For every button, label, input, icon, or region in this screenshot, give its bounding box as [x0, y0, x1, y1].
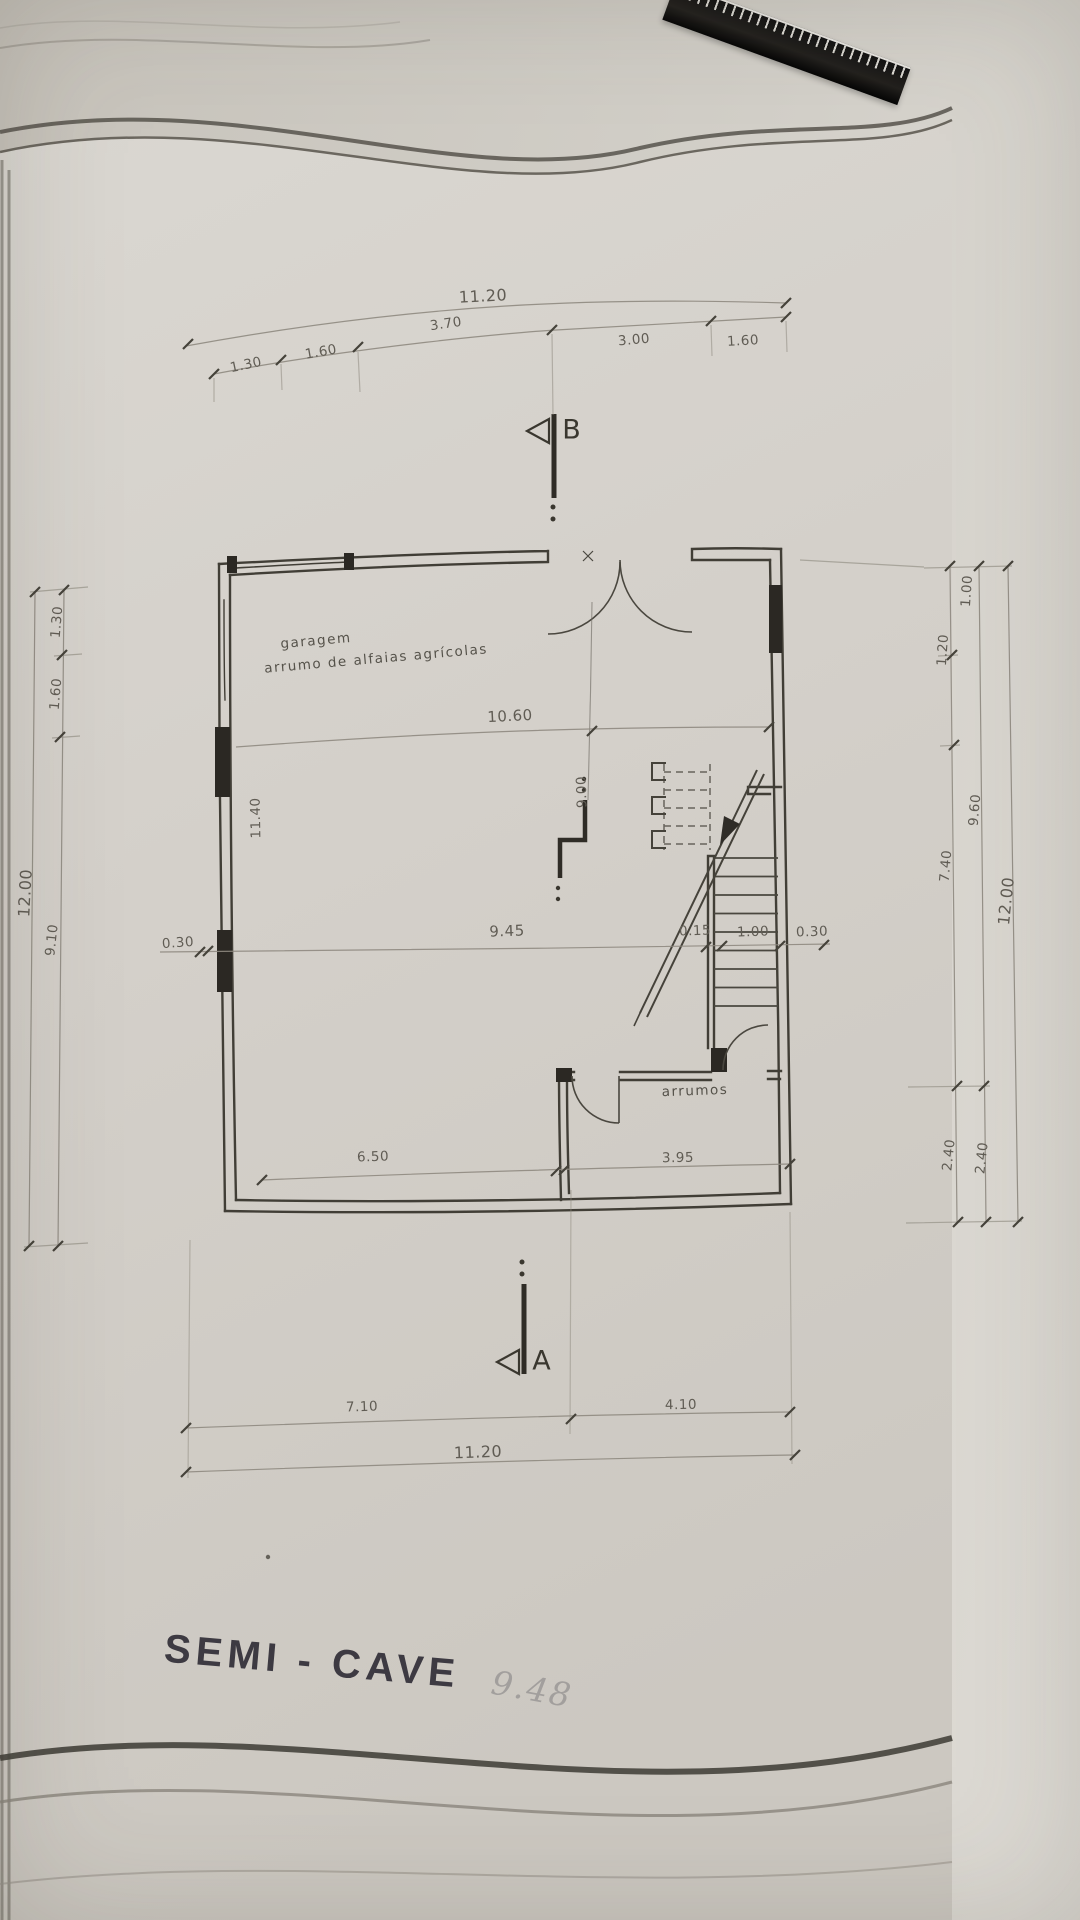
dim-garage-depth: 9.00: [573, 776, 590, 809]
dim-right-middle-2: 2.40: [972, 1141, 991, 1175]
dim-right-inner-1: 1.00: [958, 574, 976, 607]
dim-right-middle-1: 9.60: [966, 793, 985, 826]
paper-sheet: [0, 21, 952, 1920]
section-marker-b-label: B: [562, 415, 582, 446]
dim-right-wall: 0.30: [796, 923, 829, 940]
dim-bottom-seg-2: 4.10: [665, 1397, 697, 1414]
section-marker-a-label: A: [532, 1346, 551, 1377]
dim-bottom-seg-1: 7.10: [346, 1398, 379, 1415]
dim-left-interior: 11.40: [248, 797, 265, 838]
dim-top-total: 11.20: [458, 285, 507, 307]
dim-left-seg-1: 1.30: [48, 605, 67, 638]
dim-left-seg-3: 9.10: [42, 923, 61, 957]
dim-left-seg-2: 1.60: [47, 677, 66, 710]
room-label-arrumos: arrumos: [661, 1082, 728, 1100]
dim-top-seg-5: 1.60: [727, 332, 760, 350]
dim-right-inner-2: 1.20: [934, 633, 952, 666]
photo-of-floor-plan: 11.20 1.30 1.60 3.70 3.00 1.60 B A garag…: [0, 0, 1080, 1920]
dim-stair-width: 1.00: [737, 923, 770, 940]
dim-left-total: 12.00: [14, 868, 36, 917]
dim-mid-width: 9.45: [489, 921, 525, 940]
dim-garage-width: 10.60: [487, 706, 533, 726]
dim-bottom-total: 11.20: [454, 1442, 503, 1463]
dim-stair-partition: 0.15: [679, 922, 712, 939]
plan-drawing: [0, 0, 1080, 1920]
dim-left-wall: 0.30: [161, 934, 194, 952]
dim-bottom-right-interior: 3.95: [662, 1150, 694, 1167]
dim-top-seg-4: 3.00: [617, 331, 650, 350]
dim-bottom-left-interior: 6.50: [357, 1148, 390, 1165]
dim-right-inner-3: 7.40: [937, 849, 956, 882]
pencil-dot: [266, 1555, 270, 1559]
dim-right-inner-4: 2.40: [939, 1138, 958, 1172]
